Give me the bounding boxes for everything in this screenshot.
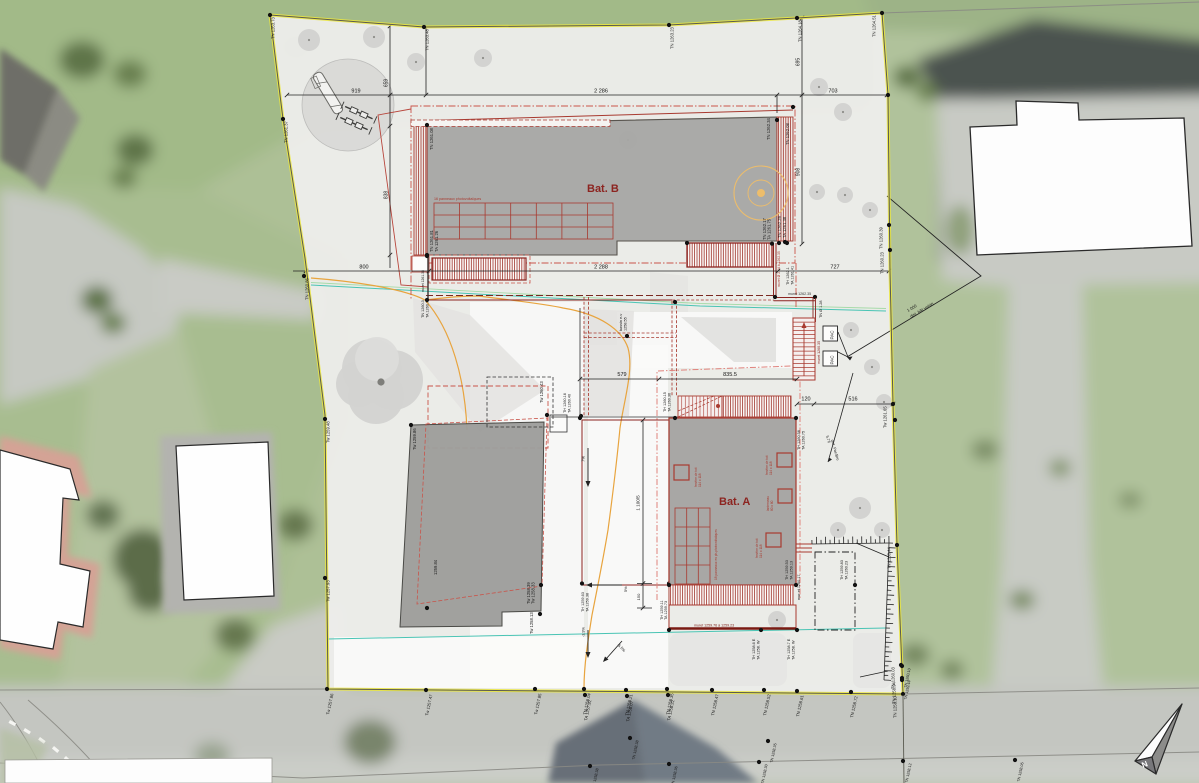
svg-text:Tw 1260.43: Tw 1260.43 [539,381,544,403]
svg-text:TN Ø 1.28: TN Ø 1.28 [819,300,823,318]
svg-text:659: 659 [384,79,390,88]
svg-text:18 panneaux en ph.photovoltaïq: 18 panneaux en ph.photovoltaïques [714,529,718,580]
svg-text:114 x 118: 114 x 118 [769,461,773,475]
svg-text:TH 1262.1: TH 1262.1 [786,267,790,285]
svg-text:TH 1260.58: TH 1260.58 [797,430,801,450]
svg-text:Tw 1258.33: Tw 1258.33 [531,582,536,604]
svg-text:TN 1260.86: TN 1260.86 [305,277,310,300]
svg-text:TA 1260.40: TA 1260.40 [568,394,572,413]
svg-text:TH 1258.7 E: TH 1258.7 E [787,638,791,660]
svg-text:1 100/5: 1 100/5 [636,495,641,511]
svg-text:TH 1260.16: TH 1260.16 [563,393,567,413]
svg-text:908: 908 [796,168,802,177]
svg-text:TH 1259.83: TH 1259.83 [840,560,844,580]
svg-text:TA 1260.73: TA 1260.73 [426,299,430,318]
svg-text:TA 1261.26: TA 1261.26 [434,230,439,252]
svg-text:TA 1260.23: TA 1260.23 [845,561,849,580]
svg-text:TN 1264.51: TN 1264.51 [872,14,877,37]
svg-text:TA 1259.38: TA 1259.38 [586,593,590,612]
svg-text:TN 1260.39: TN 1260.39 [879,226,884,249]
svg-text:Tw 1259.48: Tw 1259.48 [326,421,331,443]
svg-text:PAC: PAC [830,355,835,365]
svg-text:muret 1259.76 à 1259.23: muret 1259.76 à 1259.23 [694,624,734,628]
svg-text:114 x 118: 114 x 118 [698,473,702,487]
svg-text:TA 1259.13: TA 1259.13 [790,561,794,580]
svg-text:TN 1260.44: TN 1260.44 [887,546,892,569]
svg-text:TA 1261.41: TA 1261.41 [791,266,795,285]
svg-text:Tw 1261.65: Tw 1261.65 [883,406,888,428]
svg-text:150: 150 [636,593,641,600]
svg-text:TA 1259.73: TA 1259.73 [664,601,668,620]
svg-text:Tw 1258.13: Tw 1258.13 [529,612,534,634]
svg-text:838: 838 [384,191,390,200]
svg-text:TN 1263.48: TN 1263.48 [425,28,430,51]
svg-text:TH 1260.15: TH 1260.15 [663,392,667,412]
svg-text:16 panneaux photovoltaïques: 16 panneaux photovoltaïques [434,197,481,201]
svg-text:7%: 7% [581,456,586,462]
svg-text:2 288: 2 288 [594,265,608,271]
svg-text:114 x 118: 114 x 118 [759,544,763,558]
svg-text:TN 1260.3: TN 1260.3 [421,300,425,318]
svg-text:bassin e-v: bassin e-v [619,314,623,331]
svg-text:muret 1260.35: muret 1260.35 [817,341,821,364]
svg-text:TA 1260.75: TA 1260.75 [802,431,806,450]
svg-text:TN 1262.08: TN 1262.08 [785,122,790,145]
svg-text:TN 1261.37: TN 1261.37 [284,120,289,143]
svg-text:TH 1258.6 E: TH 1258.6 E [752,638,756,660]
svg-text:muret 1261.38: muret 1261.38 [421,270,425,292]
svg-text:TN 1260.23: TN 1260.23 [880,251,885,274]
svg-text:TA 1258. W: TA 1258. W [757,640,761,660]
svg-text:TA 1261.38: TA 1261.38 [782,216,787,238]
svg-text:1258.55: 1258.55 [624,317,628,331]
svg-text:Tw 1257.93: Tw 1257.93 [326,580,331,602]
svg-text:TA 1258. W: TA 1258. W [792,640,796,660]
svg-text:TN 1263.73: TN 1263.73 [271,16,276,39]
svg-text:TH 1259.53: TH 1259.53 [785,560,789,580]
svg-text:TH 1259.63: TH 1259.63 [581,592,585,612]
svg-text:Tw 1259.86: Tw 1259.86 [412,428,417,450]
svg-text:TN 1261.08: TN 1261.08 [429,127,434,150]
svg-text:-3.9%: -3.9% [582,626,586,637]
svg-text:516: 516 [848,397,857,403]
svg-text:PAC: PAC [830,330,835,340]
svg-text:TN 1262.34: TN 1262.34 [766,117,771,140]
svg-text:1259.84: 1259.84 [433,559,438,575]
svg-text:TA 1260.36: TA 1260.36 [668,393,672,412]
svg-text:muret 1262.35: muret 1262.35 [788,292,811,296]
svg-text:TN 1263.23: TN 1263.23 [670,26,675,49]
svg-text:mur et 1260.17: mur et 1260.17 [797,574,801,600]
svg-text:919: 919 [351,89,360,95]
svg-text:Bat. B: Bat. B [587,183,619,195]
svg-text:TA 1261.75: TA 1261.75 [767,218,772,240]
svg-text:695: 695 [796,58,802,67]
svg-text:TN 1258.10: TN 1258.10 [893,695,898,718]
svg-text:2 286: 2 286 [594,89,608,95]
svg-text:120: 120 [801,397,810,403]
svg-text:727: 727 [830,265,839,271]
svg-text:703: 703 [828,89,837,95]
svg-text:5%: 5% [624,586,628,592]
svg-text:TN 1264.18: TN 1264.18 [798,19,803,42]
svg-text:80 x 80: 80 x 80 [770,500,774,511]
svg-text:579: 579 [617,372,626,378]
svg-text:Bat. A: Bat. A [719,496,750,508]
svg-text:835.5: 835.5 [723,372,737,378]
svg-text:800: 800 [359,265,368,271]
